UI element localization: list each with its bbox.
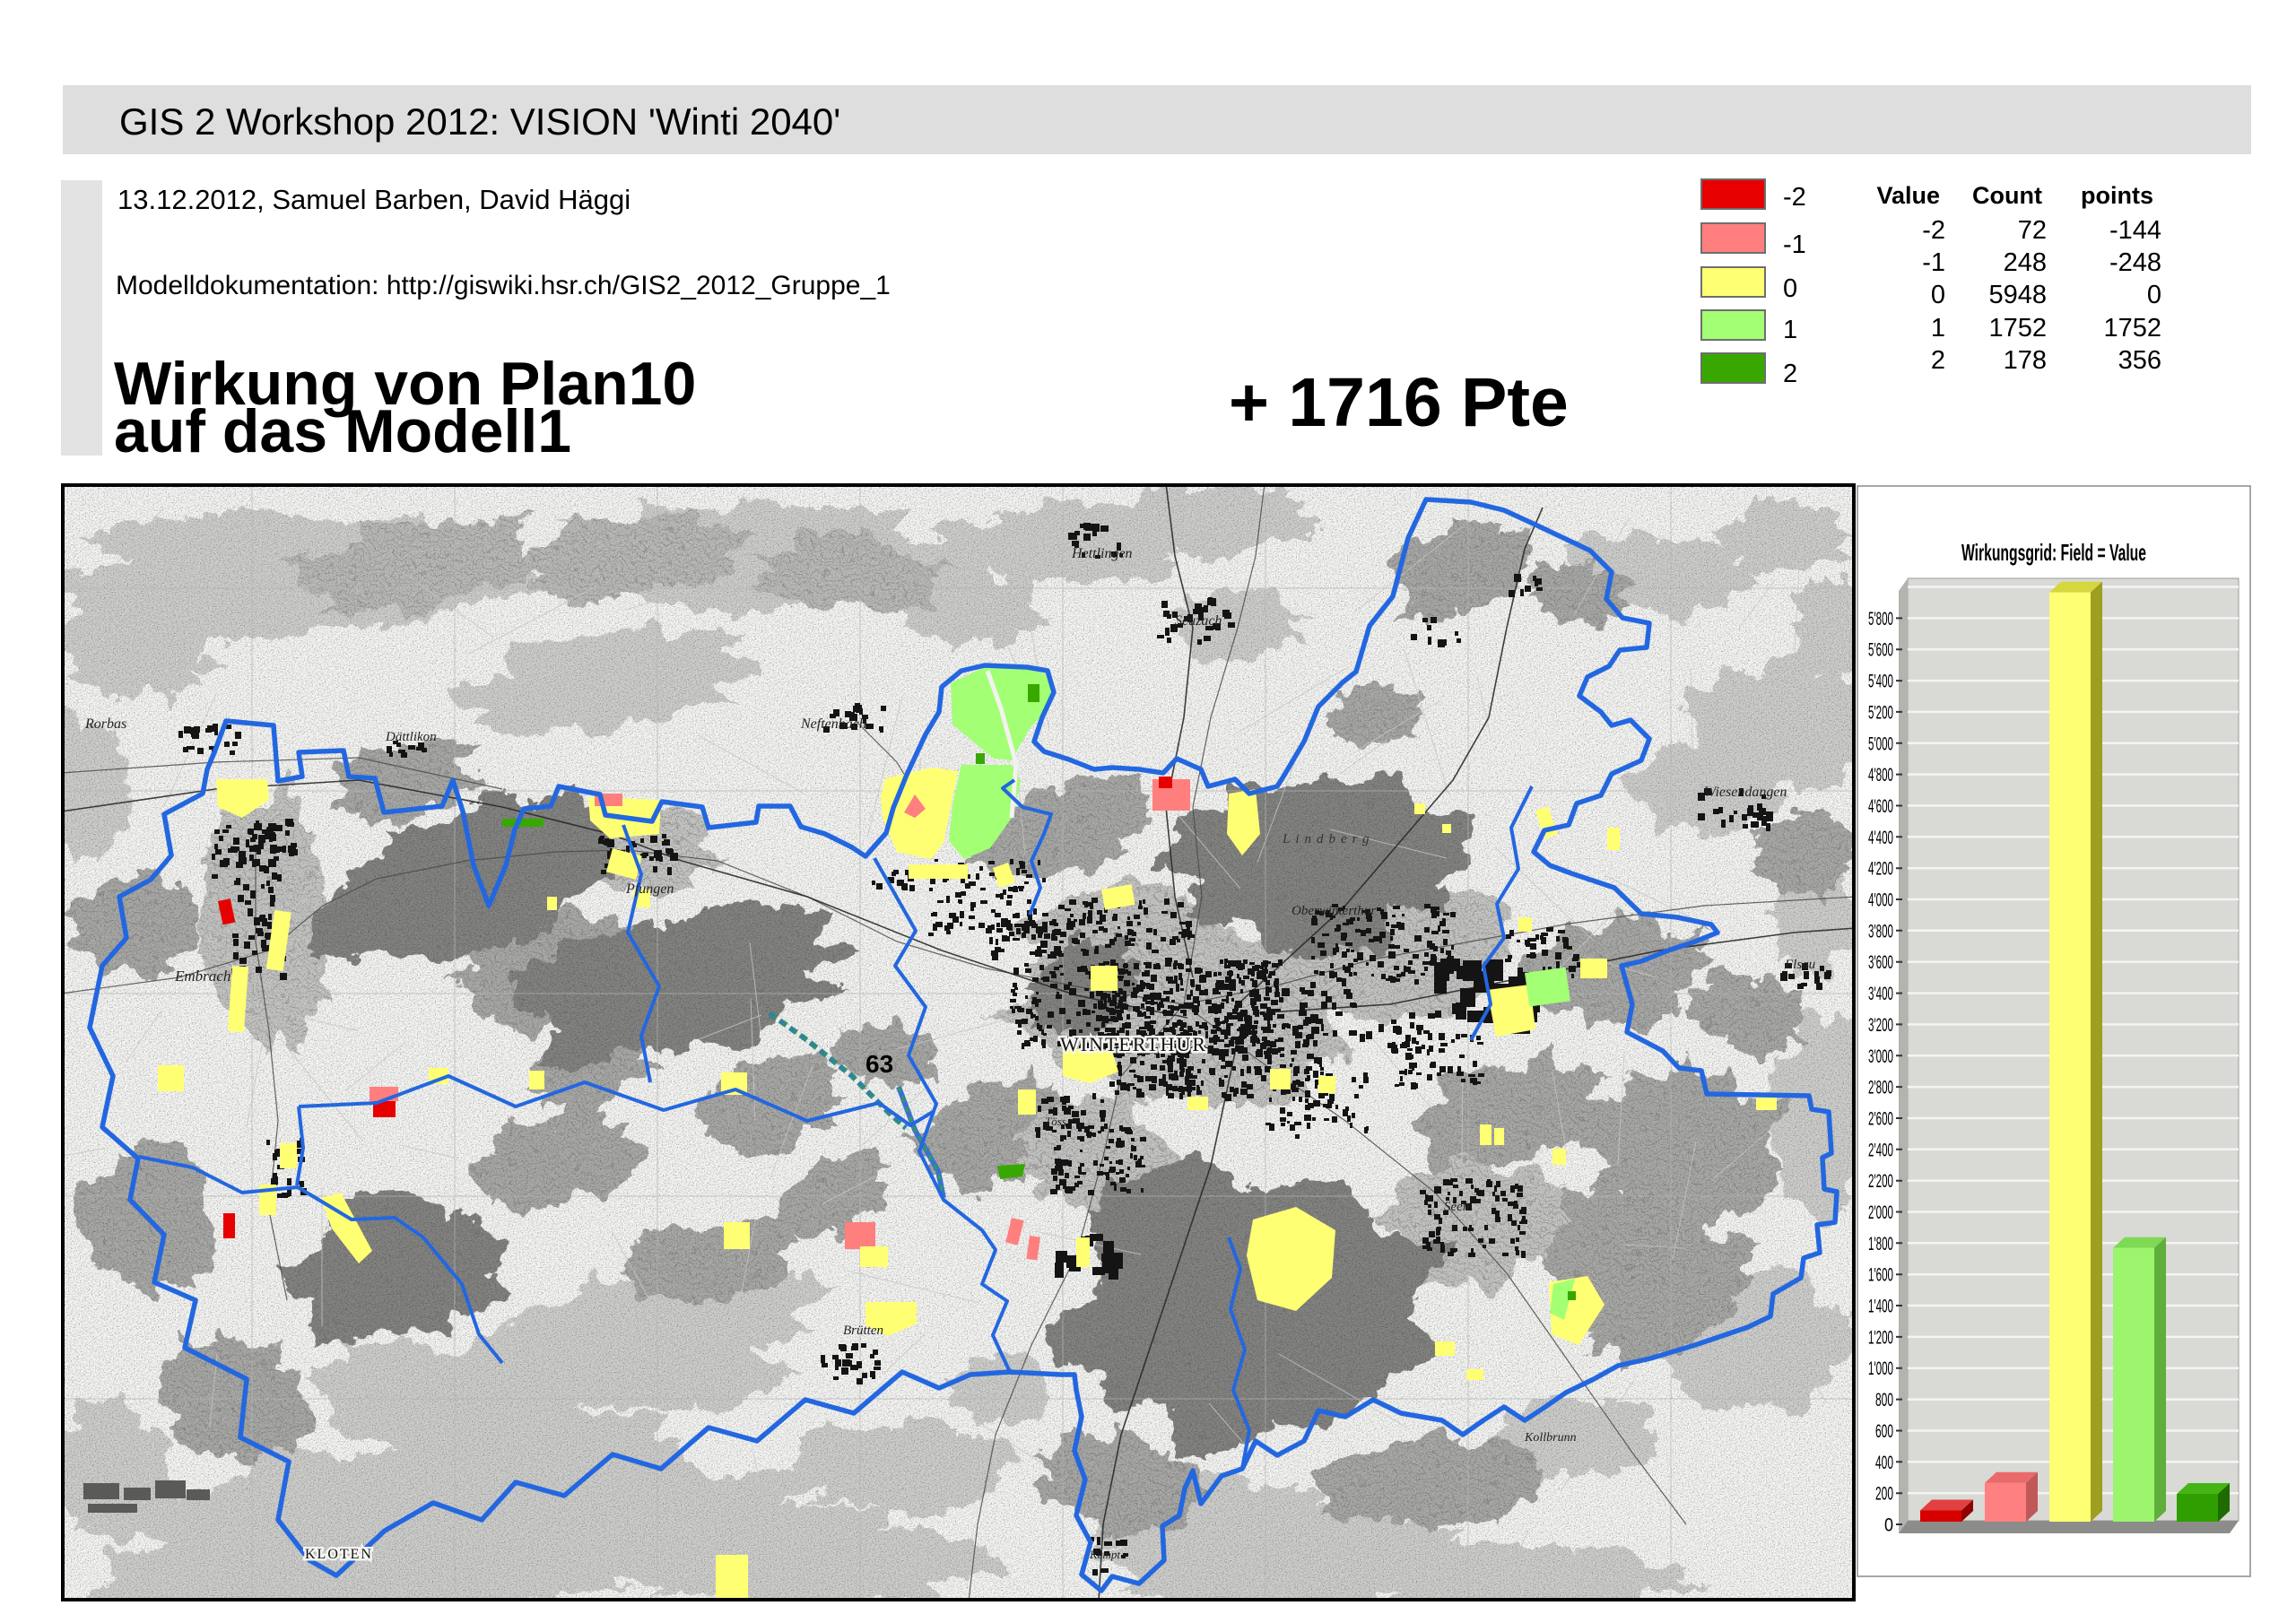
svg-text:4'200: 4'200 bbox=[1868, 859, 1893, 880]
svg-text:0: 0 bbox=[1884, 1515, 1893, 1536]
svg-text:5'400: 5'400 bbox=[1868, 672, 1893, 692]
svg-text:4'600: 4'600 bbox=[1868, 796, 1893, 817]
svg-text:1'400: 1'400 bbox=[1868, 1297, 1893, 1317]
svg-text:4'800: 4'800 bbox=[1868, 765, 1893, 785]
svg-text:3'000: 3'000 bbox=[1868, 1046, 1893, 1067]
svg-text:3'800: 3'800 bbox=[1868, 921, 1893, 942]
svg-text:3'600: 3'600 bbox=[1868, 952, 1893, 973]
svg-text:1'800: 1'800 bbox=[1868, 1234, 1893, 1254]
svg-text:5'000: 5'000 bbox=[1868, 733, 1893, 754]
svg-text:4'400: 4'400 bbox=[1868, 828, 1893, 848]
svg-text:5'600: 5'600 bbox=[1868, 640, 1893, 661]
svg-text:2'600: 2'600 bbox=[1868, 1109, 1893, 1130]
svg-text:2'800: 2'800 bbox=[1868, 1078, 1893, 1098]
svg-text:5'200: 5'200 bbox=[1868, 702, 1893, 723]
svg-text:1'000: 1'000 bbox=[1868, 1358, 1893, 1379]
svg-text:2'000: 2'000 bbox=[1868, 1202, 1893, 1223]
svg-text:Wirkungsgrid: Field = Value: Wirkungsgrid: Field = Value bbox=[1961, 539, 2146, 566]
svg-text:1'600: 1'600 bbox=[1868, 1265, 1893, 1286]
svg-text:3'400: 3'400 bbox=[1868, 984, 1893, 1004]
svg-text:600: 600 bbox=[1875, 1421, 1893, 1442]
svg-text:1'200: 1'200 bbox=[1868, 1327, 1893, 1348]
svg-text:200: 200 bbox=[1875, 1484, 1893, 1505]
svg-text:3'200: 3'200 bbox=[1868, 1015, 1893, 1036]
svg-text:800: 800 bbox=[1875, 1390, 1893, 1410]
svg-text:400: 400 bbox=[1875, 1453, 1893, 1473]
svg-text:5'800: 5'800 bbox=[1868, 609, 1893, 629]
svg-text:4'000: 4'000 bbox=[1868, 890, 1893, 911]
svg-text:2'200: 2'200 bbox=[1868, 1171, 1893, 1192]
svg-text:2'400: 2'400 bbox=[1868, 1140, 1893, 1160]
